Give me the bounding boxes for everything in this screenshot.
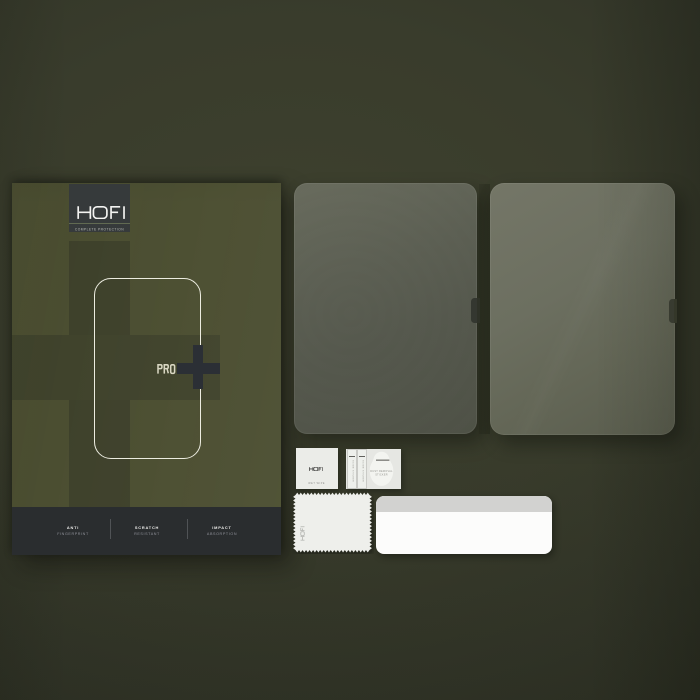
- svg-text:ABSORPTION: ABSORPTION: [207, 532, 237, 536]
- svg-text:GUIDE STICKER: GUIDE STICKER: [352, 460, 354, 482]
- svg-text:ANTI: ANTI: [67, 525, 79, 530]
- svg-text:GUIDE STICKER: GUIDE STICKER: [362, 460, 364, 482]
- svg-text:IMPACT: IMPACT: [212, 525, 231, 530]
- svg-text:SCRATCH: SCRATCH: [134, 525, 158, 530]
- svg-text:RESISTANT: RESISTANT: [134, 532, 160, 536]
- svg-text:STICKER: STICKER: [375, 473, 388, 476]
- svg-text:COMPLETE PROTECTION: COMPLETE PROTECTION: [75, 227, 124, 231]
- svg-text:FINGERPRINT: FINGERPRINT: [57, 532, 89, 536]
- svg-text:WET WIPE: WET WIPE: [308, 482, 325, 485]
